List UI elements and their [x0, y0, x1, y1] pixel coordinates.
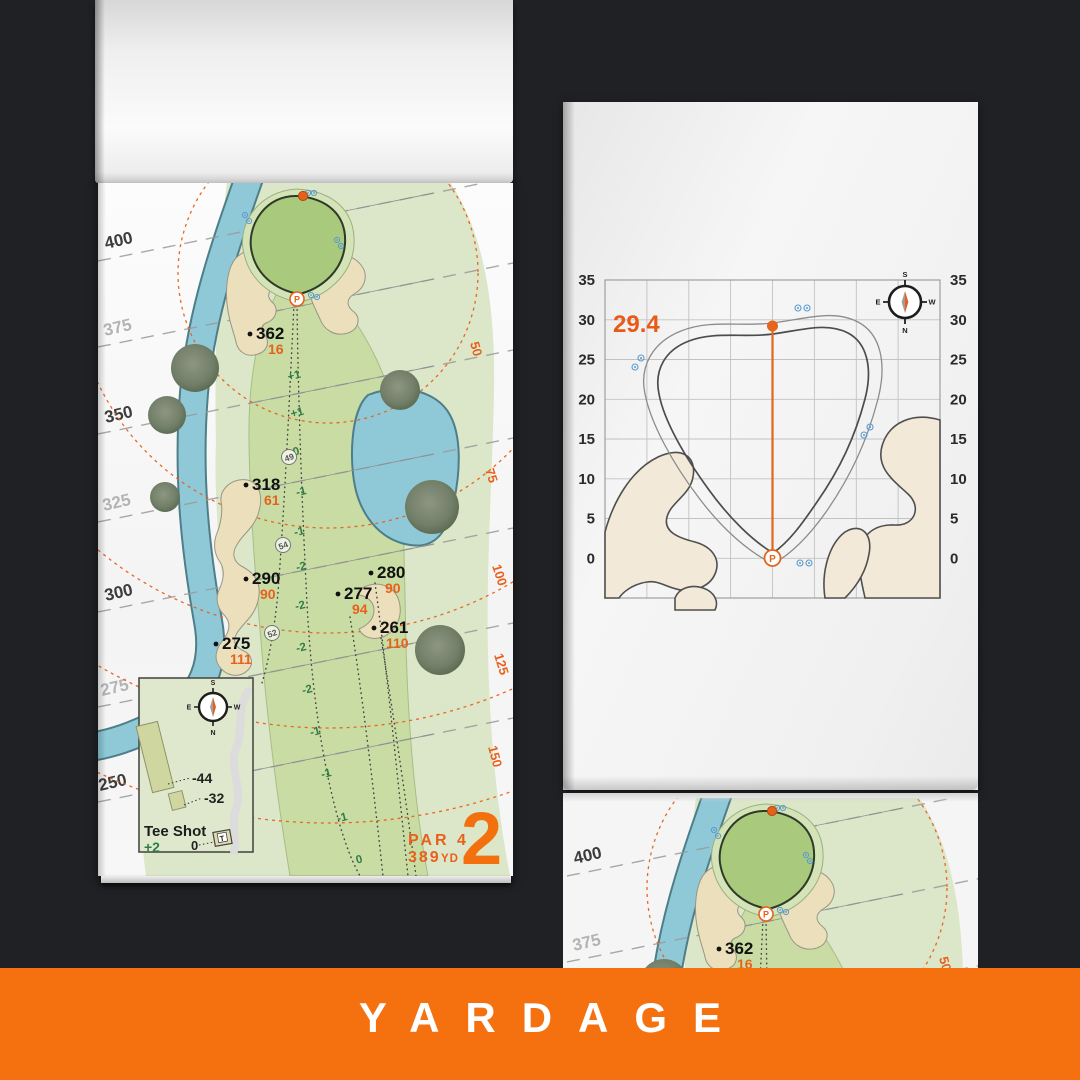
- front-marker: P: [759, 907, 773, 921]
- hole-number: 2: [461, 797, 502, 876]
- green-detail-page: 3530 2520 1510 50 3530 2520 1510 50 P 29…: [563, 102, 978, 790]
- tee-shot-inset: -44 -32 Tee Shot +2 0 T S N W E: [136, 678, 253, 855]
- svg-text:N: N: [902, 326, 907, 335]
- to-pin-value: 16: [268, 341, 284, 357]
- to-pin-value: 94: [352, 601, 368, 617]
- right-axis-ticks: 3530 2520 1510 50: [950, 272, 967, 567]
- next-hole-page[interactable]: 400 375 350 325 300 275 250 50 75 100 12…: [563, 793, 978, 968]
- to-pin-value: 110: [386, 635, 409, 651]
- front-marker-label: P: [294, 295, 300, 305]
- arc-label: 125: [491, 651, 512, 676]
- yard-line-label: 325: [101, 490, 133, 515]
- tee-shot-score: +2: [144, 839, 160, 855]
- svg-text:10: 10: [950, 471, 967, 488]
- green-outline: [658, 327, 869, 553]
- to-pin-value: 111: [230, 651, 252, 667]
- hole-map-page: 400 375 350 325 300 275 250 50 75 100 12…: [98, 183, 513, 876]
- yard-line-label: 375: [102, 315, 134, 340]
- svg-text:10: 10: [578, 471, 595, 488]
- svg-text:15: 15: [578, 431, 595, 448]
- flipped-blank-page[interactable]: [95, 0, 513, 183]
- to-pin-value: 16: [737, 956, 753, 968]
- tee-zero-label: 0: [191, 838, 198, 853]
- banner-title: YARDAGE: [333, 994, 747, 1042]
- svg-text:E: E: [187, 705, 192, 712]
- svg-text:N: N: [210, 730, 215, 737]
- svg-text:30: 30: [578, 312, 595, 329]
- svg-text:15: 15: [950, 431, 967, 448]
- svg-text:35: 35: [950, 272, 967, 289]
- yard-line-label: 400: [572, 843, 604, 868]
- svg-text:0: 0: [587, 550, 595, 567]
- pin-dot: [298, 191, 307, 200]
- left-axis-ticks: 3530 2520 1510 50: [578, 272, 595, 567]
- green-detail-chart: 3530 2520 1510 50 3530 2520 1510 50 P 29…: [563, 102, 978, 790]
- tee-near-offset: -32: [204, 790, 224, 806]
- svg-text:W: W: [234, 705, 241, 712]
- svg-text:35: 35: [578, 272, 595, 289]
- arc-label: 100: [489, 562, 510, 587]
- svg-text:25: 25: [950, 352, 967, 369]
- front-marker: P: [290, 292, 304, 306]
- svg-text:S: S: [902, 270, 907, 279]
- svg-text:W: W: [928, 298, 936, 307]
- svg-text:0: 0: [950, 550, 958, 567]
- svg-text:5: 5: [587, 511, 595, 528]
- yard-line-label: 375: [571, 930, 603, 955]
- to-pin-value: 61: [264, 492, 280, 508]
- hole-map: 400 375 350 325 300 275 250 50 75 100 12…: [567, 798, 978, 968]
- svg-text:20: 20: [950, 391, 967, 408]
- front-marker-label: P: [763, 910, 769, 920]
- par-label: PAR 4: [408, 832, 469, 849]
- yards-value: 389: [408, 849, 441, 866]
- svg-text:30: 30: [950, 312, 967, 329]
- pin-dot: [767, 806, 776, 815]
- to-pin-value: 90: [260, 586, 276, 602]
- tee-far-offset: -44: [192, 770, 212, 786]
- pin-depth-value: 29.4: [613, 311, 660, 338]
- green-outline-fringe: [644, 316, 882, 564]
- svg-text:E: E: [875, 298, 880, 307]
- svg-text:25: 25: [578, 352, 595, 369]
- svg-text:20: 20: [578, 391, 595, 408]
- yardage-banner: YARDAGE: [0, 968, 1080, 1080]
- front-marker: P: [765, 550, 781, 566]
- page-stack-edge: [101, 876, 511, 883]
- svg-text:S: S: [211, 680, 216, 687]
- svg-text:P: P: [769, 554, 776, 565]
- svg-text:5: 5: [950, 511, 958, 528]
- yards-unit: YD: [441, 853, 459, 865]
- yard-line-label: 275: [99, 675, 131, 700]
- yard-line-label: 300: [103, 580, 135, 605]
- yard-line-label: 400: [103, 228, 135, 253]
- hole-map: 400 375 350 325 300 275 250 50 75 100 12…: [98, 183, 513, 876]
- pin-dot: [767, 321, 778, 332]
- yard-line-label: 350: [103, 402, 135, 427]
- to-pin-value: 90: [385, 580, 401, 596]
- yard-line-label: 250: [98, 770, 129, 795]
- tee-marker-icon: T: [213, 830, 232, 847]
